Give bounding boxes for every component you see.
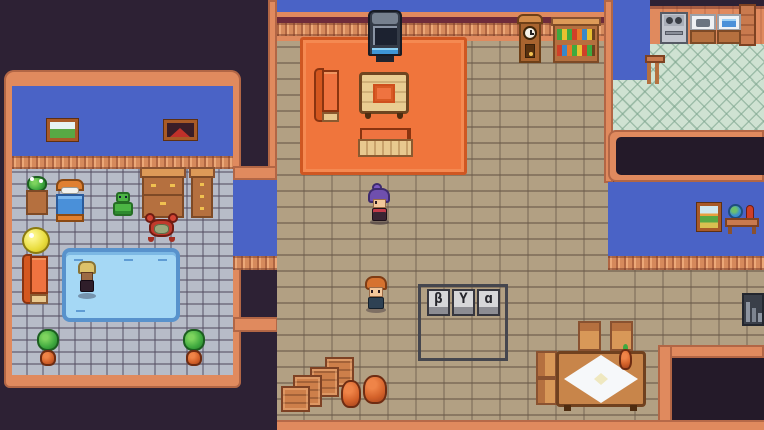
- dining-chair: [536, 378, 557, 405]
- doorway-bottom-border: [233, 166, 277, 180]
- character-eye: [375, 201, 377, 204]
- bottom-right-border-h: [658, 345, 764, 358]
- tv-base: [376, 56, 394, 62]
- couch-base: [322, 112, 339, 122]
- table-foot: [564, 405, 571, 411]
- ball-sparkle: [29, 233, 34, 238]
- small-dresser: [189, 167, 215, 222]
- drawer-handle: [200, 183, 204, 186]
- flower-blossom: [39, 179, 43, 183]
- drawer-handle: [160, 202, 166, 205]
- drawer-divider: [144, 194, 182, 196]
- table-leg: [728, 227, 732, 234]
- rug-couch-vertical: [314, 68, 341, 122]
- bed: [56, 179, 84, 222]
- dresser-body: [191, 176, 213, 218]
- kitchen-sink: [690, 14, 716, 44]
- globe: [728, 204, 743, 219]
- plant-bush: [37, 329, 59, 351]
- plant-pot: [186, 350, 202, 366]
- grandfather-clock: [517, 14, 543, 63]
- tv-screen: [373, 26, 397, 45]
- crab-leg: [169, 237, 175, 242]
- pool-ripple: [124, 259, 133, 261]
- bottle: [758, 313, 762, 322]
- hall-ledge: [233, 317, 278, 332]
- bottom-right-void: [672, 358, 764, 420]
- drawer-handle: [151, 184, 156, 187]
- game-screen[interactable]: β Y ɑ: [0, 0, 764, 430]
- washer-top: [717, 14, 741, 31]
- tv-top: [372, 13, 398, 24]
- table-cloth: [373, 84, 395, 103]
- stove: [660, 12, 688, 44]
- bed-footboard: [56, 214, 84, 222]
- clay-pot: [341, 380, 361, 408]
- kitchen-floor-lower: [613, 80, 764, 133]
- volcano-shape: [170, 128, 190, 137]
- robot-eye: [125, 196, 127, 198]
- clock-pendulum-window: [525, 44, 535, 58]
- keycap-b: β: [427, 289, 450, 316]
- rug-couch-horizontal: [358, 128, 413, 157]
- path-picture: [697, 203, 721, 231]
- bookshelf: [551, 17, 601, 63]
- table-foot: [365, 113, 371, 119]
- character-blonde-swimmer[interactable]: [75, 261, 99, 299]
- bed-blanket: [56, 194, 84, 216]
- table-foot: [630, 405, 637, 411]
- drawer-handle: [170, 184, 175, 187]
- volcano-picture: [164, 120, 197, 140]
- landscape-picture: [47, 119, 78, 141]
- character-eye: [378, 290, 380, 293]
- washer: [717, 14, 741, 44]
- character-orange-haired[interactable]: [362, 276, 390, 313]
- clock-face: [523, 26, 537, 40]
- keycap-a: ɑ: [477, 289, 500, 316]
- washer-cabinet: [717, 30, 741, 44]
- stove-burner: [666, 17, 673, 24]
- kitchen-railing: [645, 55, 665, 84]
- bed-pillow: [61, 187, 79, 194]
- crab-shell: [154, 224, 169, 234]
- couch-cushions: [322, 70, 339, 114]
- tv-blue-deck: [372, 48, 398, 54]
- railing-top-bar: [645, 55, 665, 63]
- table-stand: [26, 190, 48, 215]
- dining-chair: [578, 321, 601, 351]
- rug-table: [359, 72, 409, 119]
- hall-blue-wall: [233, 180, 277, 256]
- robot-eye: [119, 196, 121, 198]
- button-sign-zone: β Y ɑ: [418, 284, 508, 361]
- couch-base: [358, 139, 413, 157]
- yellow-ball[interactable]: [22, 227, 50, 254]
- potted-plant: [36, 329, 60, 367]
- keycap-y: Y: [452, 289, 475, 316]
- couch-cushions: [30, 256, 48, 296]
- table-shelf-top: [725, 218, 759, 227]
- character-body: [368, 297, 384, 309]
- table-leg: [752, 227, 756, 234]
- flower-blossom: [30, 177, 34, 181]
- couch-base: [30, 294, 48, 304]
- stove-burner: [675, 17, 682, 24]
- tv: [368, 10, 402, 62]
- table-foot: [397, 113, 403, 119]
- washer-panel: [722, 19, 736, 27]
- character-body: [372, 208, 387, 221]
- railing-slats: [647, 63, 663, 84]
- bottom-wall-band: [277, 420, 764, 430]
- robot-body: [113, 202, 133, 216]
- character-purple-haired[interactable]: [366, 183, 393, 225]
- drawer-handle: [200, 195, 204, 198]
- character-shadow: [78, 293, 96, 299]
- character-eye: [371, 290, 373, 293]
- orange-jug: [619, 344, 632, 370]
- dark-nook-opening: [616, 137, 764, 175]
- crab-leg: [148, 237, 154, 242]
- potted-plant: [182, 329, 206, 367]
- left-room-blue-wall: [12, 86, 233, 156]
- stove-handle: [665, 31, 683, 35]
- crab-creature[interactable]: [145, 211, 178, 242]
- flower-table: [26, 176, 48, 215]
- sink-basin: [696, 19, 710, 27]
- bottle-shelf: [742, 293, 764, 326]
- pool-ripple: [158, 259, 167, 261]
- robot-toy: [112, 192, 134, 218]
- sink-cabinet: [690, 30, 716, 44]
- wood-pillar: [739, 4, 756, 46]
- drawer-handle: [200, 207, 204, 210]
- jug-body: [619, 349, 632, 370]
- dining-table: [556, 351, 646, 411]
- bookshelf-books-row: [557, 45, 595, 56]
- kitchen-floor: [650, 44, 764, 80]
- clock-hand: [530, 33, 534, 35]
- bottle: [746, 302, 750, 322]
- plant-pot: [40, 350, 56, 366]
- bottom-right-border-v: [658, 345, 672, 430]
- clay-pot: [363, 375, 387, 404]
- bookshelf-books-row: [557, 29, 595, 40]
- sink-top: [690, 14, 716, 31]
- pool-ripple: [76, 310, 85, 312]
- swimmer-body: [80, 280, 94, 292]
- doorway-right-border: [268, 0, 277, 180]
- bedroom-couch: [22, 254, 50, 304]
- clock-pendulum: [529, 52, 533, 56]
- dining-chair: [536, 351, 557, 378]
- globe-table: [725, 204, 759, 234]
- top-blue-wall-strip: [277, 0, 608, 12]
- stove-burner-panel: [664, 15, 684, 26]
- hall-trim: [233, 256, 277, 270]
- bottle: [752, 308, 756, 322]
- wooden-crate: [281, 386, 310, 412]
- plant-bush: [183, 329, 205, 351]
- right-room-trim: [608, 256, 764, 270]
